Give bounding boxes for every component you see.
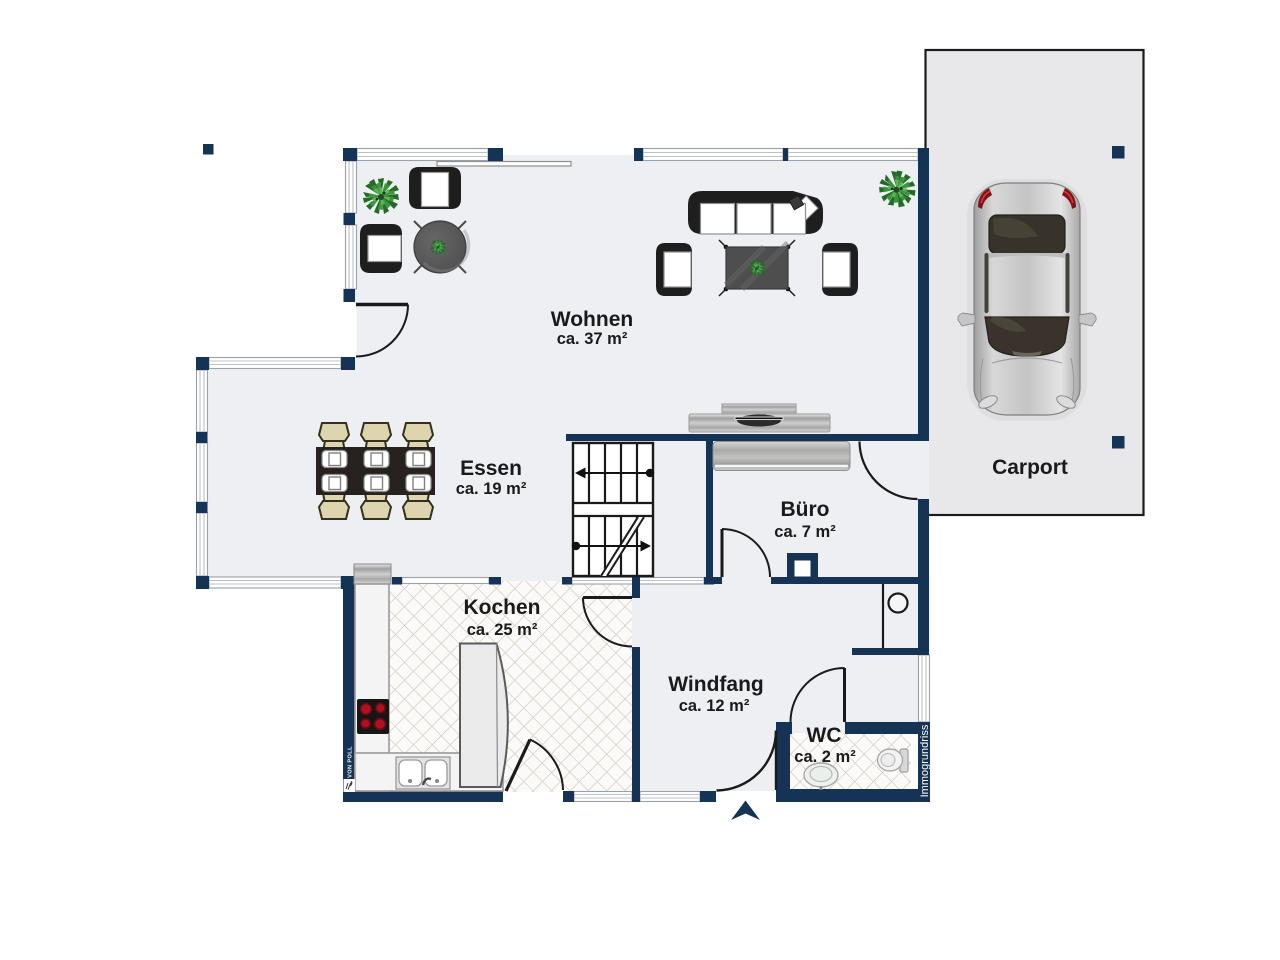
svg-text:Windfang: Windfang <box>668 673 763 696</box>
svg-text:ca. 37 m²: ca. 37 m² <box>557 330 628 348</box>
svg-text:ca. 12 m²: ca. 12 m² <box>679 697 750 715</box>
svg-text:ca. 19 m²: ca. 19 m² <box>456 480 527 498</box>
svg-text:Carport: Carport <box>992 456 1068 479</box>
svg-text:Wohnen: Wohnen <box>551 308 633 331</box>
svg-text:ca. 7 m²: ca. 7 m² <box>774 523 836 541</box>
svg-text:VON POLL: VON POLL <box>348 746 354 778</box>
svg-text:IMMOBILIEN: IMMOBILIEN <box>354 753 358 771</box>
svg-text:ca. 25 m²: ca. 25 m² <box>467 621 538 639</box>
svg-text:Büro: Büro <box>781 498 830 521</box>
svg-text:ca. 2 m²: ca. 2 m² <box>794 748 856 766</box>
svg-text:Kochen: Kochen <box>463 596 540 619</box>
svg-text:Immogrundriss: Immogrundriss <box>919 724 931 797</box>
svg-text:WC: WC <box>807 724 842 747</box>
svg-text:Essen: Essen <box>460 457 522 480</box>
